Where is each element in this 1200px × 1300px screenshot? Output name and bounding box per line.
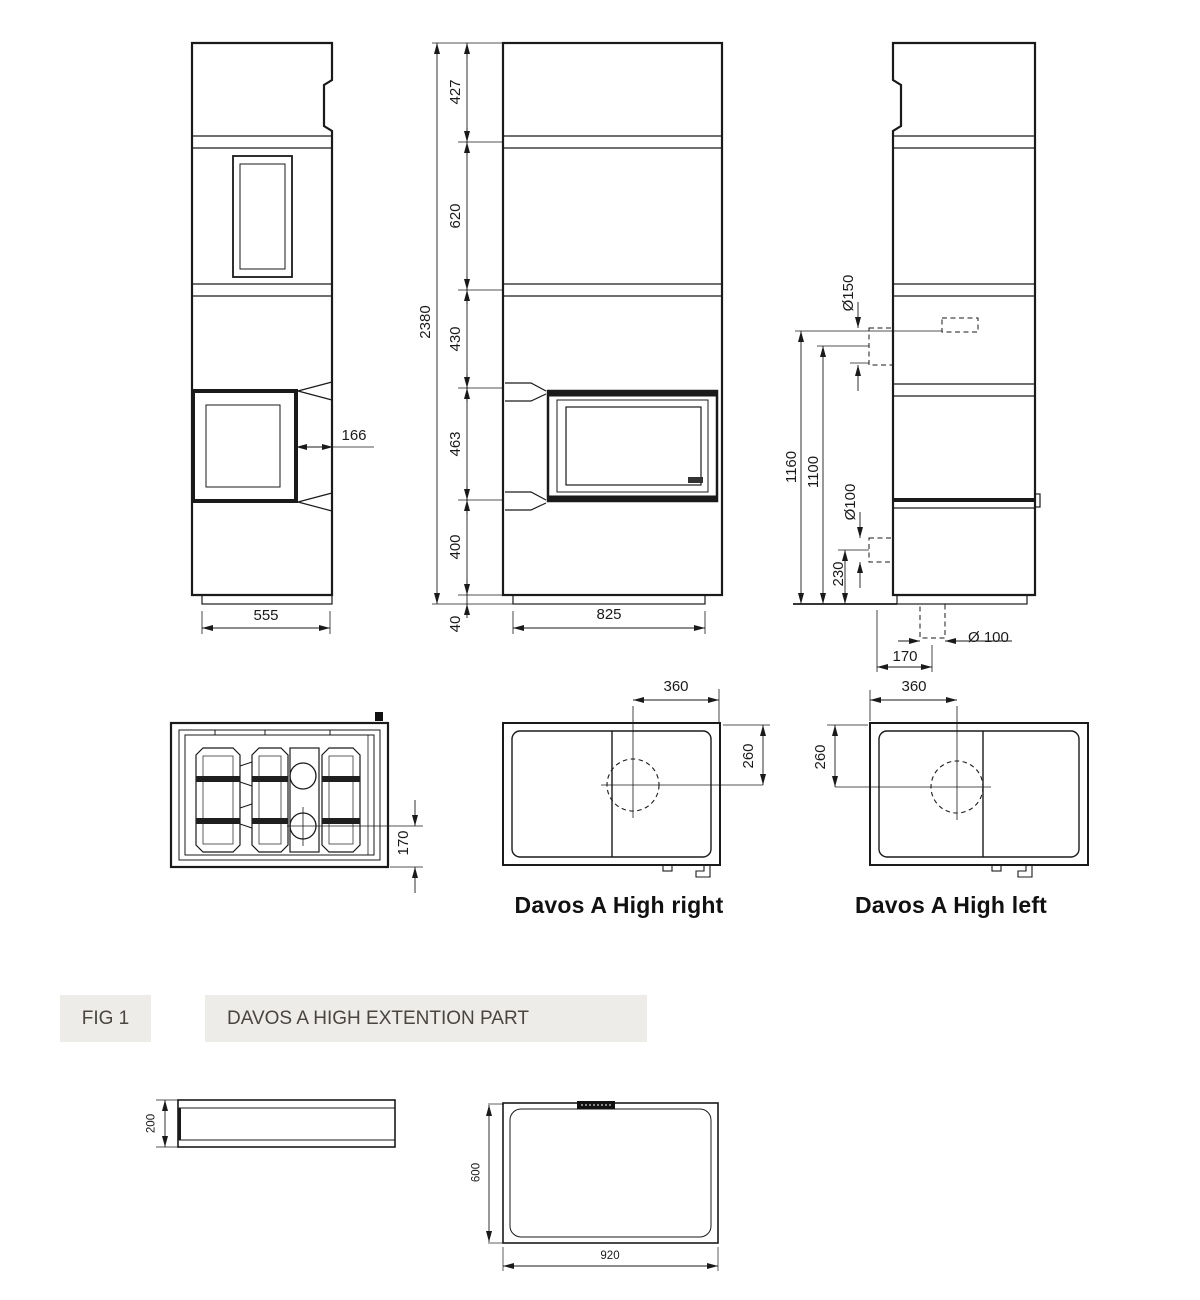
side-view-right-linework	[793, 43, 1040, 721]
dim-seg-427: 427	[448, 57, 464, 127]
dim-seg-430: 430	[448, 304, 464, 374]
dim-seg-463: 463	[448, 409, 464, 479]
title-right-model: Davos A High right	[498, 897, 740, 913]
top-view-right-model-linework	[503, 689, 770, 877]
dim-seg-400: 400	[448, 512, 464, 582]
drawing-linework	[0, 0, 1200, 1300]
dim-left-model-flue-y: 260	[813, 722, 829, 792]
dim-side-width: 555	[231, 608, 301, 624]
dim-height-230: 230	[831, 539, 847, 609]
dim-floor-flue-offset: 170	[883, 649, 927, 665]
dim-extension-height: 200	[146, 1089, 159, 1159]
dim-height-1160: 1160	[784, 432, 800, 502]
dim-extension-depth: 600	[471, 1138, 484, 1208]
extension-side-linework	[156, 1100, 395, 1147]
dim-extension-width: 920	[585, 1250, 635, 1263]
fig-title-label: DAVOS A HIGH EXTENTION PART	[227, 1008, 529, 1030]
title-left-model: Davos A High left	[830, 897, 1072, 913]
brand-logo-mark	[688, 477, 703, 483]
fig-title-bar: DAVOS A HIGH EXTENTION PART	[205, 995, 647, 1042]
technical-drawing-sheet: 555 166 427 620 430 463 400 40 2380 825 …	[0, 0, 1200, 1300]
dim-left-model-flue-x: 360	[889, 679, 939, 695]
dim-firebox-depth: 166	[332, 428, 376, 444]
dim-right-model-flue-x: 360	[651, 679, 701, 695]
extension-top-linework	[488, 1101, 718, 1271]
fig-number-box: FIG 1	[60, 995, 151, 1042]
dim-top-flue-diameter: Ø150	[841, 258, 857, 328]
dim-front-width: 825	[574, 607, 644, 623]
dim-seg-620: 620	[448, 181, 464, 251]
dim-total-height: 2380	[418, 287, 434, 357]
dim-rear-flue-diameter: Ø100	[843, 467, 859, 537]
side-view-left-linework	[192, 43, 374, 634]
dim-floor-flue-diameter: Ø 100	[968, 630, 1022, 646]
fig-number-label: FIG 1	[82, 1008, 130, 1030]
top-view-detail-linework	[171, 712, 423, 893]
front-view-linework	[432, 43, 722, 634]
dim-seg-40: 40	[448, 589, 464, 659]
dim-right-model-flue-y: 260	[741, 721, 757, 791]
top-view-left-model-linework	[827, 706, 1088, 877]
dim-height-1100: 1100	[806, 437, 822, 507]
dim-detail-flue-offset: 170	[396, 808, 412, 878]
